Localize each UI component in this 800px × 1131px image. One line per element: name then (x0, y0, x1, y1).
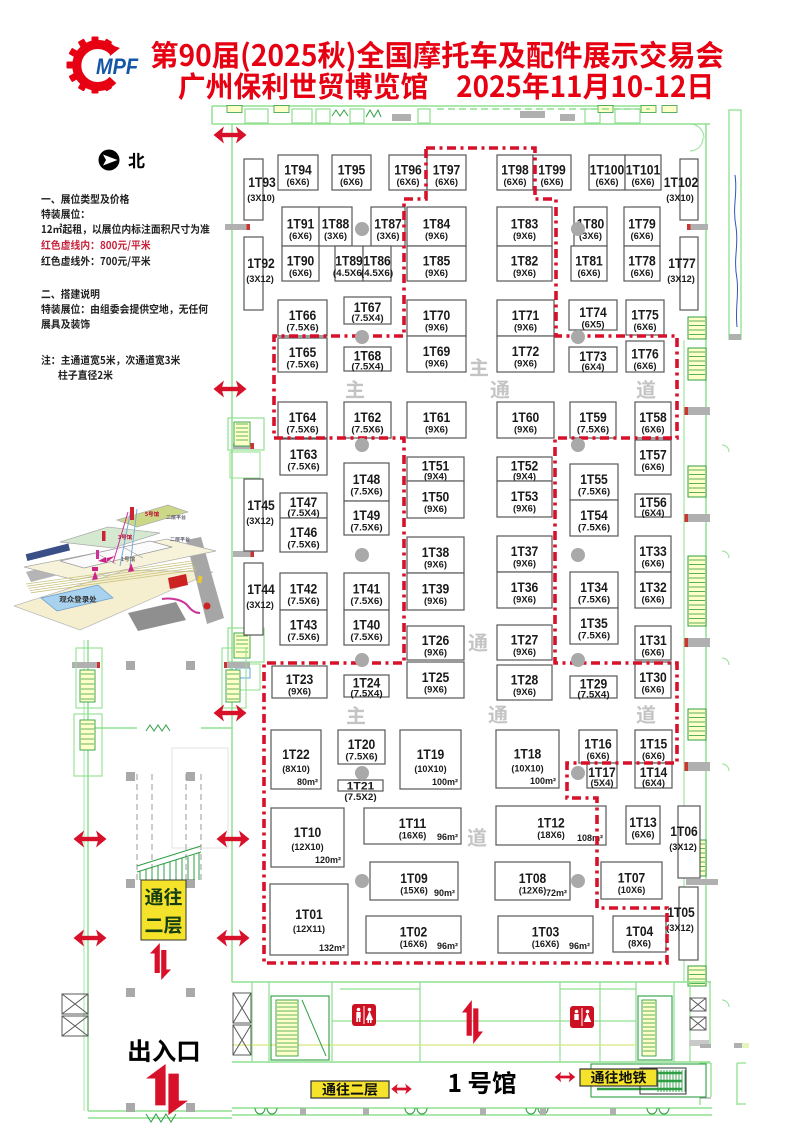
svg-text:(7.5X6): (7.5X6) (350, 523, 382, 534)
svg-text:1T10: 1T10 (294, 825, 322, 840)
svg-text:(5X4): (5X4) (591, 778, 614, 789)
svg-text:(3X10): (3X10) (666, 193, 694, 204)
svg-text:(3X12): (3X12) (669, 842, 697, 853)
svg-text:1T33: 1T33 (639, 544, 667, 559)
svg-text:(9X6): (9X6) (513, 504, 536, 515)
svg-text:(9X6): (9X6) (425, 231, 448, 242)
svg-text:1T93: 1T93 (248, 175, 276, 190)
svg-text:1T100: 1T100 (590, 163, 625, 178)
svg-text:(8X6): (8X6) (628, 939, 651, 950)
svg-text:1T69: 1T69 (423, 344, 451, 359)
svg-text:(4.5X6): (4.5X6) (361, 268, 393, 279)
svg-text:(7.5X6): (7.5X6) (578, 487, 610, 498)
svg-text:(9X6): (9X6) (425, 268, 448, 279)
svg-text:1T44: 1T44 (247, 582, 275, 597)
svg-text:(7.5X6): (7.5X6) (287, 462, 319, 473)
svg-text:(7.5X6): (7.5X6) (287, 632, 319, 643)
svg-text:(7.5X4): (7.5X4) (287, 508, 319, 519)
svg-text:(9X6): (9X6) (514, 425, 537, 436)
svg-text:(6X6): (6X6) (642, 685, 665, 696)
svg-text:MPF: MPF (96, 54, 138, 79)
svg-text:1T75: 1T75 (631, 308, 659, 323)
svg-text:1T87: 1T87 (374, 217, 402, 232)
svg-text:1T21: 1T21 (347, 781, 375, 793)
svg-text:1T03: 1T03 (532, 925, 560, 940)
svg-text:1T82: 1T82 (511, 254, 539, 269)
svg-text:1T85: 1T85 (423, 254, 451, 269)
svg-text:(7.5X6): (7.5X6) (578, 595, 610, 606)
svg-text:(6X6): (6X6) (340, 177, 363, 188)
svg-text:1T07: 1T07 (618, 871, 646, 886)
svg-text:(12X6): (12X6) (519, 886, 547, 897)
svg-text:100m²: 100m² (432, 777, 458, 787)
svg-text:(9X6): (9X6) (288, 687, 311, 698)
svg-text:1T91: 1T91 (287, 217, 315, 232)
svg-text:1T99: 1T99 (538, 163, 566, 178)
svg-text:1T58: 1T58 (639, 410, 667, 425)
svg-text:96m²: 96m² (569, 941, 590, 951)
svg-text:(6X6): (6X6) (289, 268, 312, 279)
svg-text:1T40: 1T40 (353, 618, 381, 633)
svg-text:1T81: 1T81 (575, 254, 603, 269)
svg-text:1T76: 1T76 (631, 347, 659, 362)
svg-text:(7.5X6): (7.5X6) (578, 631, 610, 642)
svg-text:90m²: 90m² (434, 888, 455, 898)
svg-text:1T06: 1T06 (670, 824, 698, 839)
svg-text:(7.5X4): (7.5X4) (350, 689, 382, 700)
svg-text:1T32: 1T32 (639, 580, 667, 595)
svg-text:1T64: 1T64 (289, 410, 317, 425)
svg-text:1T27: 1T27 (511, 633, 539, 648)
svg-text:(6X6): (6X6) (631, 231, 654, 242)
svg-text:1T57: 1T57 (639, 448, 667, 463)
svg-text:1T65: 1T65 (289, 345, 317, 360)
svg-text:132m²: 132m² (319, 943, 345, 953)
svg-text:1T01: 1T01 (295, 907, 323, 922)
svg-text:1T62: 1T62 (354, 410, 382, 425)
svg-text:(6X6): (6X6) (435, 177, 458, 188)
svg-text:1T20: 1T20 (348, 737, 376, 752)
svg-text:(9X6): (9X6) (424, 504, 447, 515)
svg-text:(7.5X6): (7.5X6) (350, 487, 382, 498)
svg-text:1T11: 1T11 (399, 816, 427, 831)
svg-text:(7.5X6): (7.5X6) (286, 360, 318, 371)
svg-text:1T23: 1T23 (286, 672, 314, 687)
svg-text:(6X6): (6X6) (634, 322, 657, 333)
svg-text:(3X12): (3X12) (246, 600, 274, 611)
svg-text:(6X6): (6X6) (596, 177, 619, 188)
svg-text:1T78: 1T78 (628, 254, 656, 269)
svg-text:(7.5X6): (7.5X6) (351, 425, 383, 436)
svg-text:1T89: 1T89 (335, 254, 363, 269)
svg-text:80m²: 80m² (297, 777, 318, 787)
svg-text:(9X6): (9X6) (513, 231, 536, 242)
svg-text:1T70: 1T70 (423, 308, 451, 323)
svg-text:(9X6): (9X6) (513, 595, 536, 606)
svg-text:(6X6): (6X6) (642, 751, 665, 762)
svg-text:(6X6): (6X6) (504, 177, 527, 188)
svg-text:(6X6): (6X6) (587, 751, 610, 762)
svg-text:1T59: 1T59 (579, 410, 607, 425)
svg-text:(6X6): (6X6) (642, 425, 665, 436)
svg-text:(3X12): (3X12) (667, 274, 695, 285)
svg-text:(6X6): (6X6) (642, 595, 665, 606)
svg-text:(9X6): (9X6) (424, 685, 447, 696)
svg-text:1T101: 1T101 (626, 163, 661, 178)
svg-text:(7.5X6): (7.5X6) (350, 632, 382, 643)
svg-text:(9X6): (9X6) (425, 425, 448, 436)
svg-text:1T41: 1T41 (353, 582, 381, 597)
svg-text:1T98: 1T98 (501, 163, 529, 178)
svg-text:1T83: 1T83 (511, 217, 539, 232)
svg-text:1T39: 1T39 (422, 582, 450, 597)
svg-text:1T86: 1T86 (363, 254, 391, 269)
svg-text:1T26: 1T26 (422, 633, 450, 648)
svg-text:(9X6): (9X6) (514, 323, 537, 334)
svg-text:(3X10): (3X10) (247, 193, 275, 204)
svg-text:120m²: 120m² (315, 855, 341, 865)
svg-text:1T05: 1T05 (667, 905, 695, 920)
svg-text:1T63: 1T63 (290, 447, 318, 462)
svg-text:(6X6): (6X6) (287, 177, 310, 188)
svg-text:(7.5X6): (7.5X6) (345, 752, 377, 763)
svg-text:1T96: 1T96 (394, 163, 422, 178)
svg-text:(9X6): (9X6) (424, 648, 447, 659)
svg-text:1T22: 1T22 (282, 747, 310, 762)
svg-text:1T25: 1T25 (422, 670, 450, 685)
svg-text:1T09: 1T09 (400, 871, 428, 886)
svg-text:(6X6): (6X6) (642, 648, 665, 659)
svg-text:1T02: 1T02 (400, 925, 428, 940)
svg-text:(6X6): (6X6) (397, 177, 420, 188)
svg-text:1T74: 1T74 (579, 305, 607, 320)
svg-text:1T45: 1T45 (247, 498, 275, 513)
svg-text:(6X6): (6X6) (632, 830, 655, 841)
svg-text:(6X4): (6X4) (642, 778, 665, 789)
svg-text:1T79: 1T79 (628, 217, 656, 232)
svg-text:(9X6): (9X6) (424, 560, 447, 571)
svg-text:1T95: 1T95 (338, 163, 366, 178)
svg-text:(7.5X4): (7.5X4) (351, 313, 383, 324)
svg-text:(12X10): (12X10) (291, 842, 323, 853)
svg-text:(8X10): (8X10) (282, 764, 310, 775)
svg-text:(3X6): (3X6) (324, 231, 347, 242)
svg-text:(7.5X2): (7.5X2) (344, 792, 376, 803)
svg-text:1T19: 1T19 (417, 747, 445, 762)
svg-text:1T37: 1T37 (511, 544, 539, 559)
svg-text:1T102: 1T102 (664, 175, 699, 190)
svg-text:(7.5X6): (7.5X6) (287, 596, 319, 607)
svg-text:(7.5X4): (7.5X4) (351, 362, 383, 373)
svg-text:(6X6): (6X6) (634, 361, 657, 372)
svg-text:(16X6): (16X6) (399, 831, 427, 842)
svg-text:1T35: 1T35 (580, 616, 608, 631)
svg-text:(6X6): (6X6) (632, 177, 655, 188)
svg-text:(6X4): (6X4) (642, 508, 665, 519)
svg-text:1T53: 1T53 (511, 489, 539, 504)
svg-text:1T88: 1T88 (322, 217, 350, 232)
svg-text:1T48: 1T48 (353, 472, 381, 487)
svg-text:(6X4): (6X4) (582, 362, 605, 373)
svg-text:(16X6): (16X6) (532, 939, 560, 950)
svg-text:100m²: 100m² (530, 776, 556, 786)
svg-text:1T94: 1T94 (284, 163, 312, 178)
svg-text:(16X6): (16X6) (400, 939, 428, 950)
svg-text:(9X6): (9X6) (514, 359, 537, 370)
svg-text:(9X6): (9X6) (513, 559, 536, 570)
svg-text:(10X10): (10X10) (511, 764, 543, 775)
svg-text:(9X6): (9X6) (424, 596, 447, 607)
svg-text:1T72: 1T72 (512, 344, 540, 359)
svg-text:(18X6): (18X6) (537, 830, 565, 841)
svg-text:1T55: 1T55 (580, 472, 608, 487)
svg-text:1T77: 1T77 (668, 256, 696, 271)
svg-text:1T97: 1T97 (433, 163, 461, 178)
svg-text:1T42: 1T42 (290, 582, 318, 597)
svg-text:(3X12): (3X12) (246, 516, 274, 527)
svg-text:(7.5X4): (7.5X4) (577, 690, 609, 701)
svg-text:1T61: 1T61 (423, 410, 451, 425)
svg-text:1T46: 1T46 (290, 525, 318, 540)
svg-text:(3X6): (3X6) (377, 231, 400, 242)
svg-text:1T90: 1T90 (287, 254, 315, 269)
svg-text:(15X6): (15X6) (400, 886, 428, 897)
svg-text:96m²: 96m² (437, 941, 458, 951)
svg-text:(9X6): (9X6) (513, 647, 536, 658)
svg-text:1T43: 1T43 (290, 618, 318, 633)
svg-text:1T18: 1T18 (514, 747, 542, 762)
svg-text:(9X6): (9X6) (425, 323, 448, 334)
svg-text:1T36: 1T36 (511, 580, 539, 595)
svg-text:1T50: 1T50 (422, 490, 450, 505)
svg-text:1T71: 1T71 (512, 308, 540, 323)
svg-text:(7.5X6): (7.5X6) (350, 596, 382, 607)
svg-text:1T66: 1T66 (289, 308, 317, 323)
svg-text:1T16: 1T16 (584, 737, 612, 752)
svg-text:(7.5X6): (7.5X6) (286, 323, 318, 334)
svg-text:(3X12): (3X12) (246, 274, 274, 285)
svg-text:(12X11): (12X11) (293, 924, 325, 935)
svg-text:1T04: 1T04 (626, 924, 654, 939)
svg-text:1T31: 1T31 (639, 633, 667, 648)
svg-text:1T15: 1T15 (640, 737, 668, 752)
svg-text:(7.5X6): (7.5X6) (578, 523, 610, 534)
svg-text:(10X10): (10X10) (414, 764, 446, 775)
svg-text:(6X6): (6X6) (578, 268, 601, 279)
svg-text:(7.5X6): (7.5X6) (577, 425, 609, 436)
svg-text:(6X6): (6X6) (541, 177, 564, 188)
svg-text:(10X6): (10X6) (618, 885, 646, 896)
svg-text:(9X6): (9X6) (513, 268, 536, 279)
svg-text:1T34: 1T34 (580, 580, 608, 595)
svg-text:1T28: 1T28 (511, 673, 539, 688)
svg-text:96m²: 96m² (437, 832, 458, 842)
svg-text:1T08: 1T08 (519, 871, 547, 886)
svg-text:(7.5X6): (7.5X6) (286, 425, 318, 436)
svg-text:(6X6): (6X6) (642, 559, 665, 570)
svg-text:1T84: 1T84 (423, 217, 451, 232)
svg-text:(6X5): (6X5) (582, 320, 605, 331)
svg-text:1T60: 1T60 (512, 410, 540, 425)
svg-text:1T30: 1T30 (639, 670, 667, 685)
svg-text:1T12: 1T12 (537, 816, 565, 831)
svg-text:1T49: 1T49 (353, 508, 381, 523)
svg-text:(7.5X6): (7.5X6) (287, 540, 319, 551)
svg-text:1T38: 1T38 (422, 545, 450, 560)
svg-text:72m²: 72m² (546, 888, 567, 898)
svg-text:(9X6): (9X6) (425, 359, 448, 370)
svg-text:(3X12): (3X12) (666, 923, 694, 934)
svg-text:(6X6): (6X6) (642, 462, 665, 473)
svg-text:(9X6): (9X6) (513, 687, 536, 698)
svg-text:1T13: 1T13 (629, 815, 657, 830)
svg-text:1T92: 1T92 (247, 256, 275, 271)
svg-text:1T54: 1T54 (580, 508, 608, 523)
svg-text:108m²: 108m² (577, 833, 603, 843)
svg-text:(6X6): (6X6) (631, 268, 654, 279)
svg-text:(6X6): (6X6) (289, 231, 312, 242)
